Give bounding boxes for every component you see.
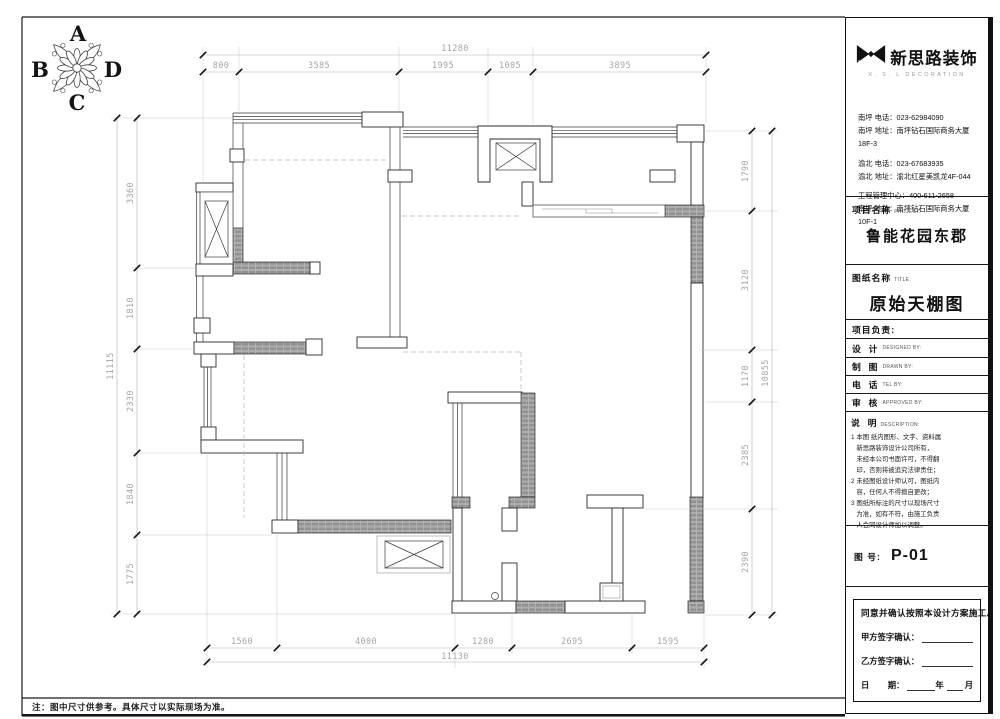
duct-shaft <box>478 126 552 182</box>
svg-text:X.S.L: X.S.L <box>858 58 868 63</box>
field-designed-by: 设 计 DESIGNED BY: <box>846 339 988 358</box>
svg-text:1810: 1810 <box>126 297 136 319</box>
contact-line: 南坪 地址：南坪钻石国际商务大厦18F-3 <box>858 124 984 150</box>
drawing-title-cell: 图纸名称 TITLE: 原始天棚图 <box>846 265 988 320</box>
footer-note: 注：图中尺寸供参考。具体尺寸以实际现场为准。 <box>32 702 230 712</box>
svg-text:4000: 4000 <box>355 637 377 647</box>
project-label: 项目名称 <box>852 203 891 216</box>
contact-line: 渝北 电话：023-67683935 <box>858 157 984 170</box>
svg-text:800: 800 <box>213 61 230 71</box>
svg-text:11280: 11280 <box>441 44 469 54</box>
svg-text:2385: 2385 <box>741 444 751 466</box>
sheet-number-cell: 图 号: P-01 <box>846 526 988 587</box>
svg-text:1790: 1790 <box>741 160 751 182</box>
svg-text:10855: 10855 <box>761 359 771 387</box>
sheet-number: P-01 <box>891 547 929 565</box>
contact-line: 南坪 电话：023-62984090 <box>858 111 984 124</box>
sheet-number-label: 图 号: <box>854 550 881 563</box>
svg-text:1170: 1170 <box>741 365 751 387</box>
svg-text:1595: 1595 <box>657 637 679 647</box>
party-a-signature-line <box>922 632 973 643</box>
field-drawn-by: 制 图 DRAWN BY: <box>846 358 988 376</box>
party-b-signature-line <box>922 656 973 667</box>
signoff-statement: 同意并确认按照本设计方案施工。 <box>861 607 973 619</box>
signoff-box: 同意并确认按照本设计方案施工。 甲方签字确认： 乙方签字确认： 日 期： 年 月 <box>853 599 981 702</box>
drawing-title: 原始天棚图 <box>852 290 982 315</box>
field-approved-by: 审 核 APPROVED BY: <box>846 394 988 412</box>
svg-text:1775: 1775 <box>126 563 136 585</box>
svg-text:3585: 3585 <box>308 61 330 71</box>
compass-letter-a: A <box>69 21 87 46</box>
brand-header: X.S.L 新思路装饰 X. S. L DECORATION <box>846 18 988 104</box>
date-row: 日 期： 年 月 <box>861 679 973 691</box>
compass-letter-b: B <box>31 57 49 82</box>
svg-text:3360: 3360 <box>126 182 136 204</box>
svg-text:1280: 1280 <box>472 637 494 647</box>
month-line <box>947 680 963 691</box>
compass-letter-c: C <box>69 90 86 115</box>
title-block: X.S.L 新思路装饰 X. S. L DECORATION 南坪 电话：023… <box>845 17 993 714</box>
svg-text:3120: 3120 <box>741 269 751 291</box>
svg-text:1840: 1840 <box>126 483 136 505</box>
drawing-label-en: TITLE: <box>894 277 911 283</box>
dimensions-right: 10855 1790 3120 1170 2385 2390 <box>645 128 778 618</box>
elevator-shaft <box>196 183 233 264</box>
project-name: 鲁能花园东郡 <box>852 225 982 246</box>
svg-text:1995: 1995 <box>432 61 454 71</box>
date-line <box>907 680 935 691</box>
description-notes: 1 本图 纸内图形、文字、资料属 新思路装饰设计公司所有， 未经本公司书面许可，… <box>851 432 983 531</box>
floor-plan-canvas: A B C D <box>0 0 845 719</box>
shower-tray <box>600 583 623 601</box>
svg-text:1560: 1560 <box>231 637 253 647</box>
walls <box>194 112 704 613</box>
svg-text:1005: 1005 <box>499 61 521 71</box>
description-cell: 说 明 DESCRIPTION: 1 本图 纸内图形、文字、资料属 新思路装饰设… <box>846 412 988 526</box>
flue-shaft <box>377 536 450 573</box>
xsl-logo-icon: X.S.L <box>856 44 886 69</box>
compass-ornament: A B C D <box>25 19 135 119</box>
field-tel: 电 话 TEL BY: <box>846 376 988 394</box>
compass-letter-d: D <box>104 57 122 82</box>
svg-text:2330: 2330 <box>126 390 136 412</box>
drawing-label: 图纸名称 <box>852 271 891 284</box>
contact-line: 渝北 地址：渝北红星美凯龙4F-044 <box>858 170 984 183</box>
svg-text:2390: 2390 <box>741 551 751 573</box>
svg-text:11115: 11115 <box>106 352 116 380</box>
party-b-signature-row: 乙方签字确认： <box>861 655 973 667</box>
svg-text:11130: 11130 <box>441 652 469 662</box>
svg-text:3895: 3895 <box>609 61 631 71</box>
project-label-en: PROJECT: <box>894 209 921 215</box>
sliding-door <box>533 205 665 217</box>
project-name-cell: 项目名称 PROJECT: 鲁能花园东郡 <box>846 197 988 265</box>
drawing-sheet: A B C D <box>0 0 1000 719</box>
signoff-cell: 同意并确认按照本设计方案施工。 甲方签字确认： 乙方签字确认： 日 期： 年 月 <box>846 587 988 713</box>
sheet-frame <box>22 17 845 717</box>
brand-tagline: X. S. L DECORATION <box>868 72 965 78</box>
field-lead: 项目负责: <box>846 320 988 339</box>
dimensions-top: 11280 800 3585 1995 1005 3895 <box>200 44 709 183</box>
brand-name: 新思路装饰 <box>890 45 978 69</box>
svg-text:2695: 2695 <box>561 637 583 647</box>
party-a-signature-row: 甲方签字确认： <box>861 631 973 643</box>
contact-info: 南坪 电话：023-62984090 南坪 地址：南坪钻石国际商务大厦18F-3… <box>846 104 988 197</box>
